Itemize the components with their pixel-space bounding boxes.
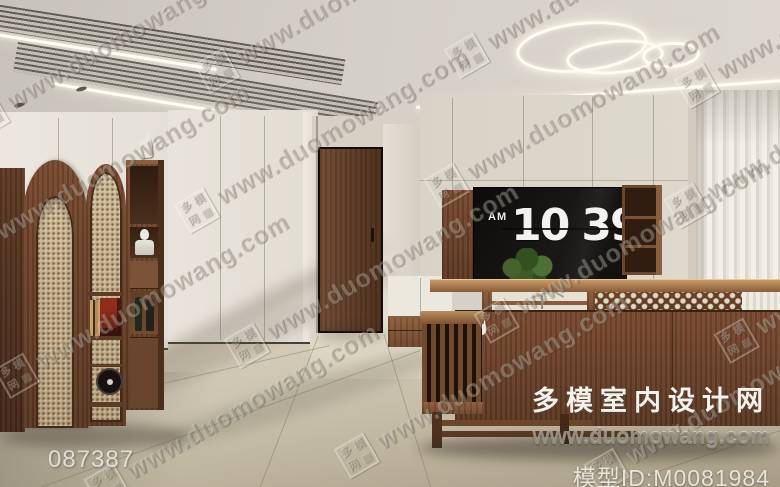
- shoe-drawer-gap: [388, 330, 426, 331]
- rail-upright: [482, 289, 492, 312]
- shelf-board: [625, 216, 659, 219]
- vinyl-record-label: [107, 379, 113, 385]
- daybed-top-rail: [430, 279, 780, 292]
- album-art: [100, 298, 121, 336]
- daybed-arm-rail: [420, 311, 484, 324]
- wardrobe-seam: [220, 116, 221, 340]
- console-gap-backdrop-2: [742, 289, 780, 312]
- column-niche: [130, 166, 158, 224]
- wine-bottle-2: [146, 299, 154, 331]
- console-gap-shelf-line: [492, 301, 587, 305]
- bust-sculpture-head: [140, 229, 149, 240]
- brand-site-name: 多模室内设计网: [440, 379, 770, 418]
- tv-side-panel: [442, 190, 475, 284]
- column-drawer: [130, 261, 158, 289]
- door-floor-shadow: [316, 330, 388, 338]
- brand-block: 多模室内设计网 www.duomowang.com 模型ID:M0081984: [440, 379, 770, 487]
- rail-upright-2: [587, 289, 595, 312]
- shoe-cabinet-seam: [420, 278, 421, 314]
- shelf-board-2: [625, 245, 659, 248]
- image-code: 087387: [48, 446, 134, 474]
- column-drawer-2: [130, 337, 158, 408]
- book-spines: [90, 300, 100, 336]
- shelf-side-face: [656, 185, 662, 275]
- screen-rattan-window: [36, 196, 74, 428]
- screen-shelf-bar-3: [88, 364, 124, 367]
- door-handle: [371, 228, 374, 242]
- wine-bottle: [135, 297, 142, 331]
- curtain-shading: [696, 90, 780, 305]
- interior-render: AM 10 39: [0, 0, 780, 487]
- brand-site-url: www.duomowang.com: [440, 424, 770, 450]
- brand-model-id: 模型ID:M0081984: [440, 459, 770, 487]
- branch-decor-stem: [541, 295, 543, 309]
- bust-sculpture-shoulders: [135, 240, 154, 255]
- display-column-side: [158, 160, 164, 410]
- tv-wall-h-seam: [420, 180, 692, 181]
- screen-shelf-bar-2: [88, 336, 124, 340]
- screen-shelf-bar-4: [88, 402, 124, 407]
- screen-shelf-bar: [88, 292, 124, 296]
